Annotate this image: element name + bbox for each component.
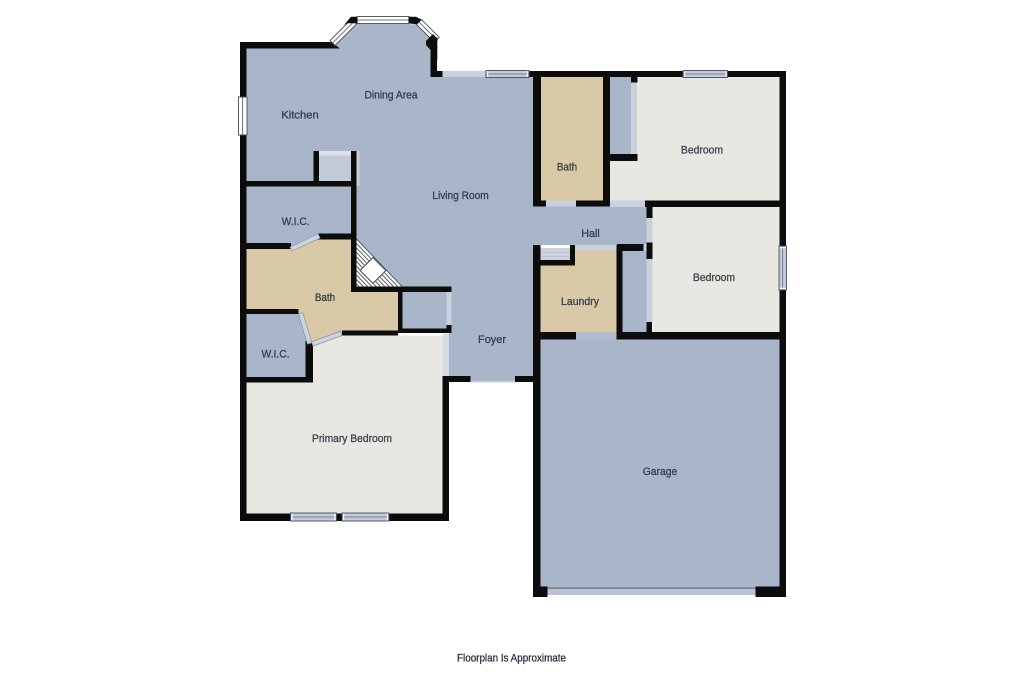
svg-text:Bedroom: Bedroom [693, 272, 735, 284]
svg-text:Bath: Bath [315, 292, 335, 304]
svg-text:Foyer: Foyer [478, 334, 506, 346]
svg-text:Primary Bedroom: Primary Bedroom [312, 433, 392, 445]
svg-text:Floorplan Is Approximate: Floorplan Is Approximate [457, 653, 566, 665]
svg-text:Hall: Hall [581, 228, 600, 240]
svg-text:Laundry: Laundry [561, 296, 599, 308]
svg-text:Bedroom: Bedroom [681, 145, 723, 157]
svg-text:W.I.C.: W.I.C. [261, 349, 289, 361]
svg-text:Kitchen: Kitchen [281, 110, 318, 122]
svg-text:Garage: Garage [643, 466, 678, 478]
svg-text:Bath: Bath [557, 162, 577, 174]
svg-text:W.I.C.: W.I.C. [282, 216, 310, 228]
svg-text:Living Room: Living Room [432, 190, 488, 202]
svg-text:Dining Area: Dining Area [364, 90, 418, 102]
